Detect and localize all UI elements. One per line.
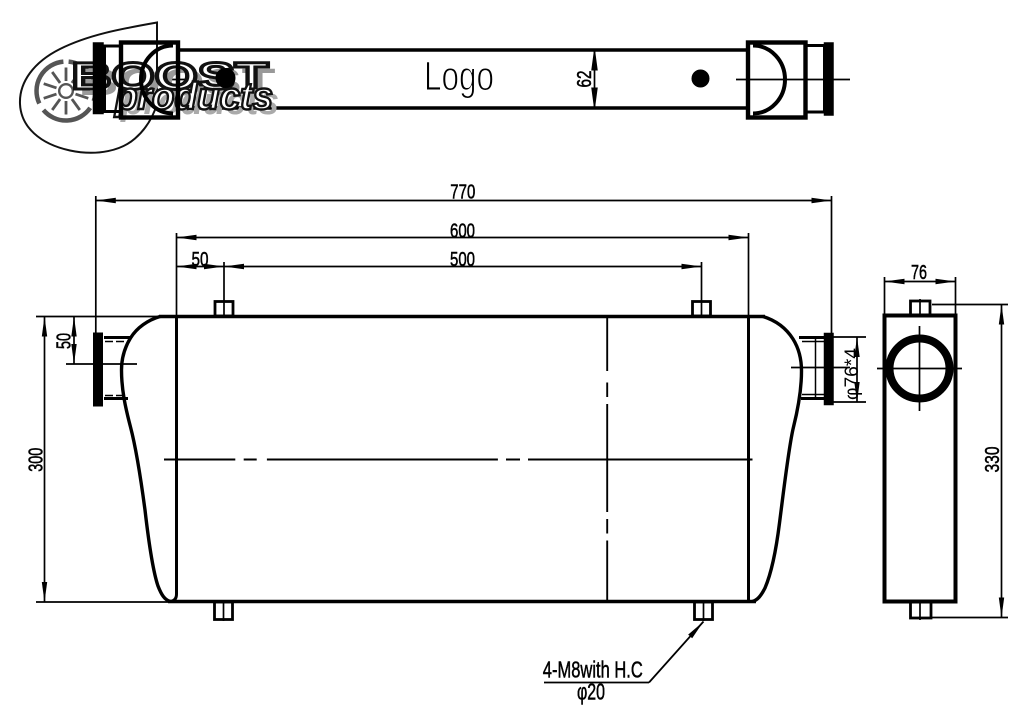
svg-text:76: 76 <box>911 262 927 284</box>
svg-text:50: 50 <box>54 333 76 349</box>
svg-text:300: 300 <box>26 448 48 472</box>
svg-text:600: 600 <box>450 220 475 242</box>
svg-text:φ20: φ20 <box>577 679 605 705</box>
svg-text:330: 330 <box>982 447 1004 473</box>
svg-text:770: 770 <box>450 181 475 203</box>
svg-text:500: 500 <box>450 249 475 271</box>
svg-text:Logo: Logo <box>424 53 494 99</box>
svg-text:50: 50 <box>192 249 209 271</box>
svg-text:products: products <box>114 76 273 118</box>
svg-text:φ76*4: φ76*4 <box>842 348 863 400</box>
svg-text:62: 62 <box>574 71 596 88</box>
